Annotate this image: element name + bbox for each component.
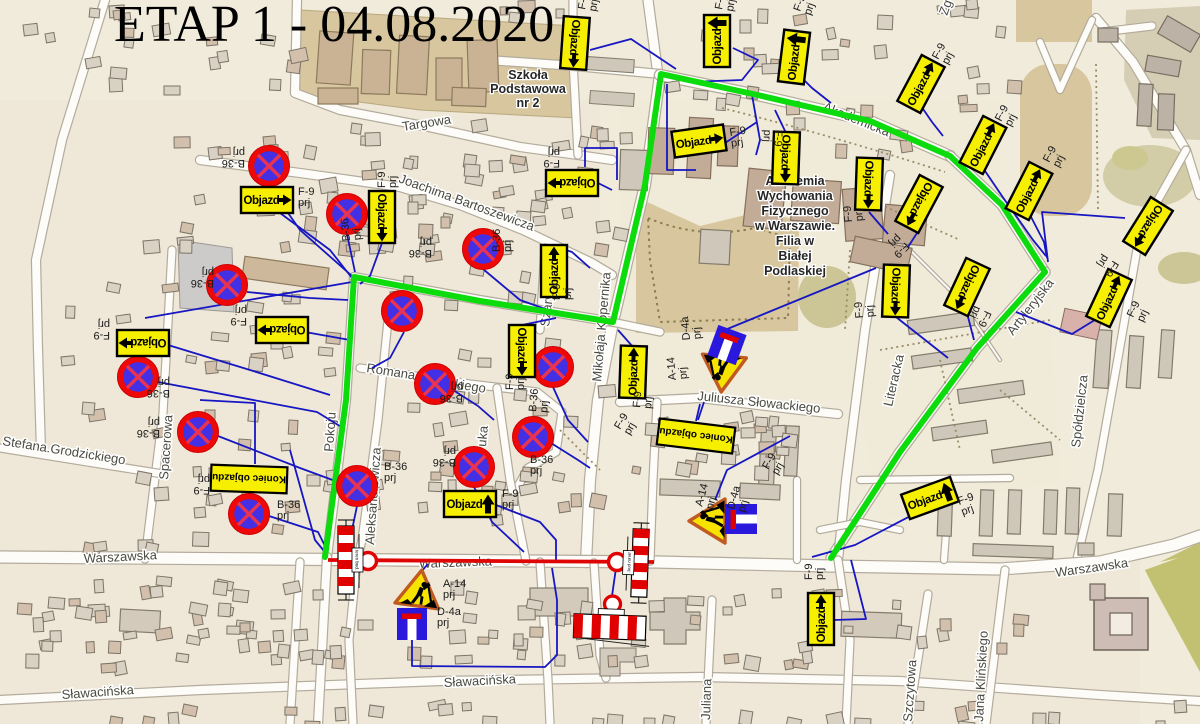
svg-text:nr 2: nr 2	[517, 96, 540, 110]
svg-text:w Warszawie.: w Warszawie.	[754, 219, 835, 233]
svg-text:Juliana: Juliana	[698, 678, 714, 720]
svg-text:Podlaskiej: Podlaskiej	[764, 264, 826, 278]
svg-text:Filia w: Filia w	[776, 234, 814, 248]
svg-text:Wychowania: Wychowania	[757, 189, 834, 203]
svg-text:Podstawowa: Podstawowa	[490, 82, 567, 96]
svg-text:Pokoju: Pokoju	[321, 412, 339, 453]
svg-text:uka: uka	[474, 424, 491, 447]
svg-text:Białej: Białej	[778, 249, 811, 263]
svg-text:Fizycznego: Fizycznego	[761, 204, 829, 218]
svg-text:ETAP 1 - 04.08.2020: ETAP 1 - 04.08.2020	[114, 0, 554, 53]
svg-text:Szkoła: Szkoła	[508, 68, 549, 82]
